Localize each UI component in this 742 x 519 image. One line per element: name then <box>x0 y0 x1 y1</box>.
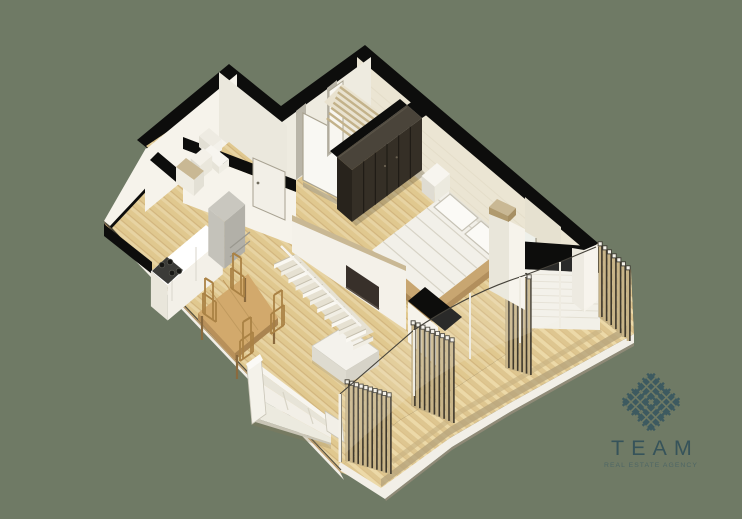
svg-text:TEAM: TEAM <box>611 436 699 460</box>
svg-text:REAL ESTATE AGENCY: REAL ESTATE AGENCY <box>604 462 698 469</box>
